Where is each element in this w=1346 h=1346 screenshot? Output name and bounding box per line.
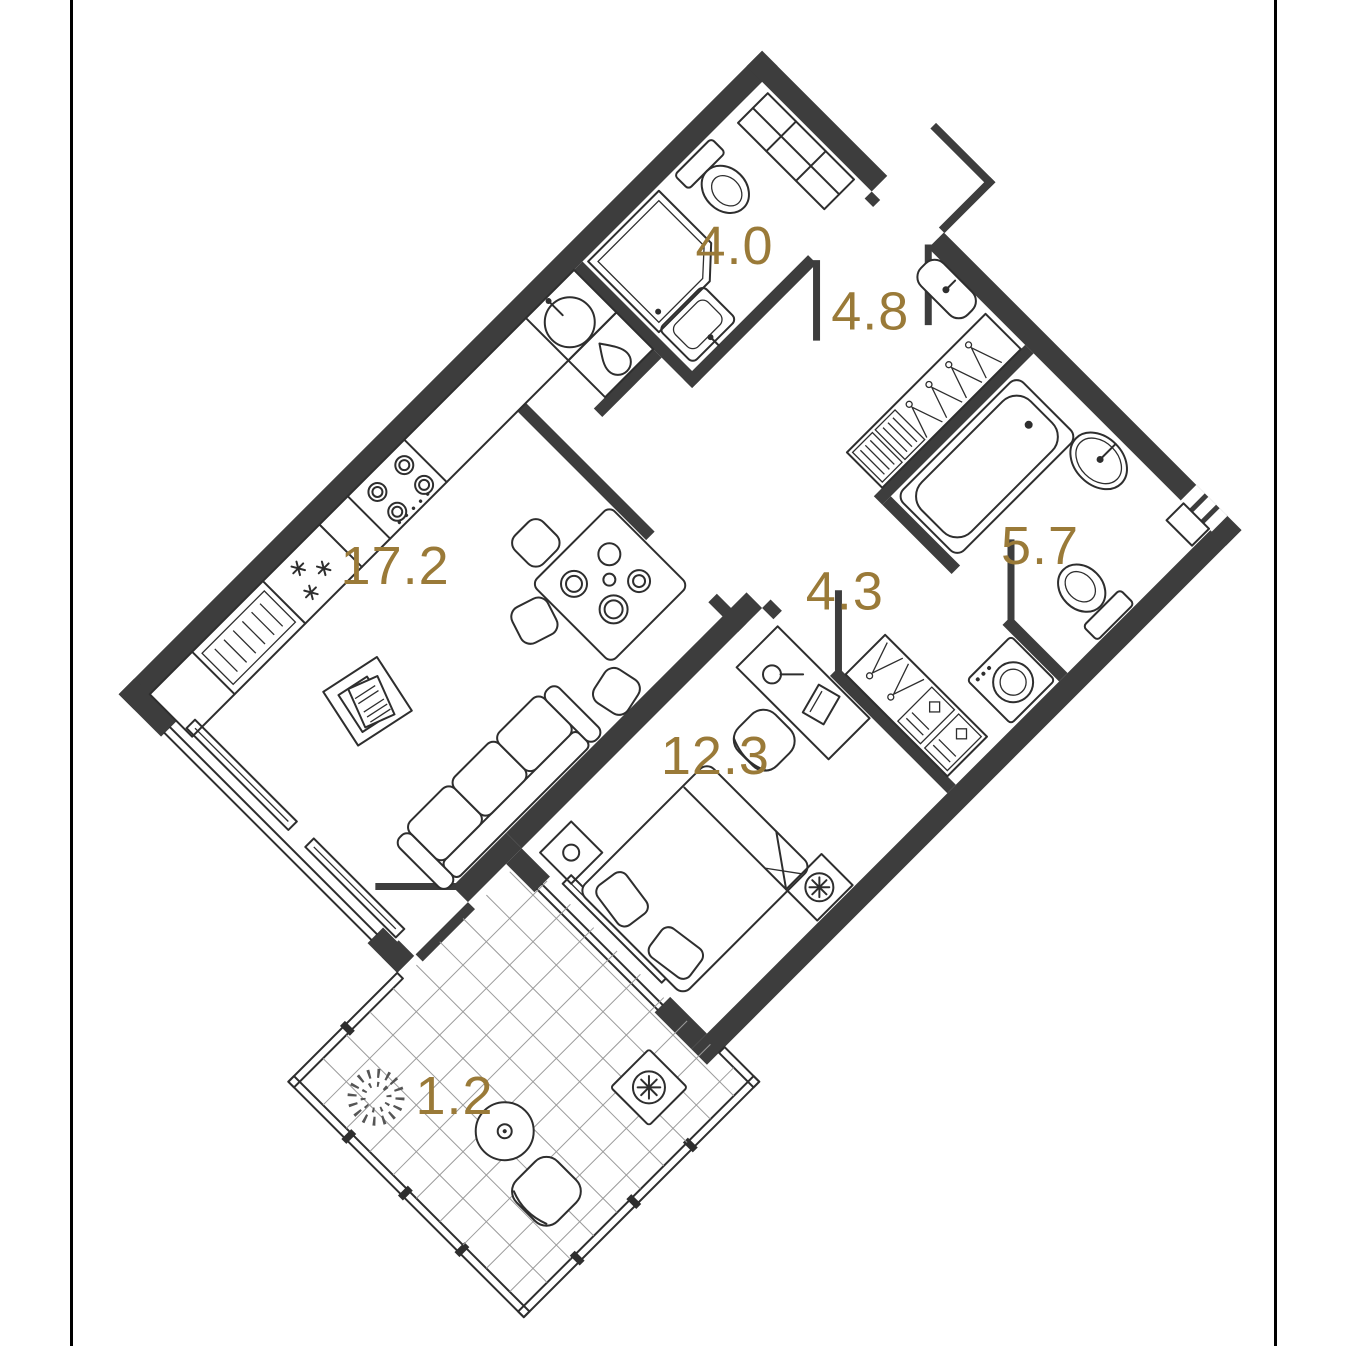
label-bedroom: 12.3	[661, 726, 770, 786]
dining-table	[532, 506, 689, 663]
label-balcony: 1.2	[415, 1066, 493, 1126]
balcony-chair	[505, 1150, 587, 1232]
refrigerator-snowflakes	[283, 546, 338, 601]
living-window	[165, 733, 371, 939]
rotated-plan-group: 17.2 4.0 4.8 4.3 5.7 12.3 1.2	[8, 0, 1330, 1321]
bathroom-5-7	[896, 360, 1204, 668]
label-kitchen-living: 17.2	[341, 536, 450, 596]
walls	[119, 0, 1293, 1174]
floor-plan-image: 17.2 4.0 4.8 4.3 5.7 12.3 1.2	[0, 0, 1346, 1346]
floor-plan-svg: 17.2 4.0 4.8 4.3 5.7 12.3 1.2	[0, 0, 1346, 1346]
threshold	[416, 902, 475, 961]
double-bed	[578, 762, 811, 995]
coffee-table	[323, 657, 412, 746]
ac-fan-unit-balcony	[611, 1049, 687, 1125]
left-frame-line	[70, 0, 73, 1346]
label-bathroom: 4.0	[695, 216, 773, 276]
label-entrance-hall: 4.8	[831, 281, 909, 341]
porch-wall	[930, 123, 995, 188]
label-bathroom-2: 5.7	[1001, 516, 1079, 576]
label-corridor: 4.3	[806, 561, 884, 621]
right-frame-line	[1274, 0, 1277, 1346]
